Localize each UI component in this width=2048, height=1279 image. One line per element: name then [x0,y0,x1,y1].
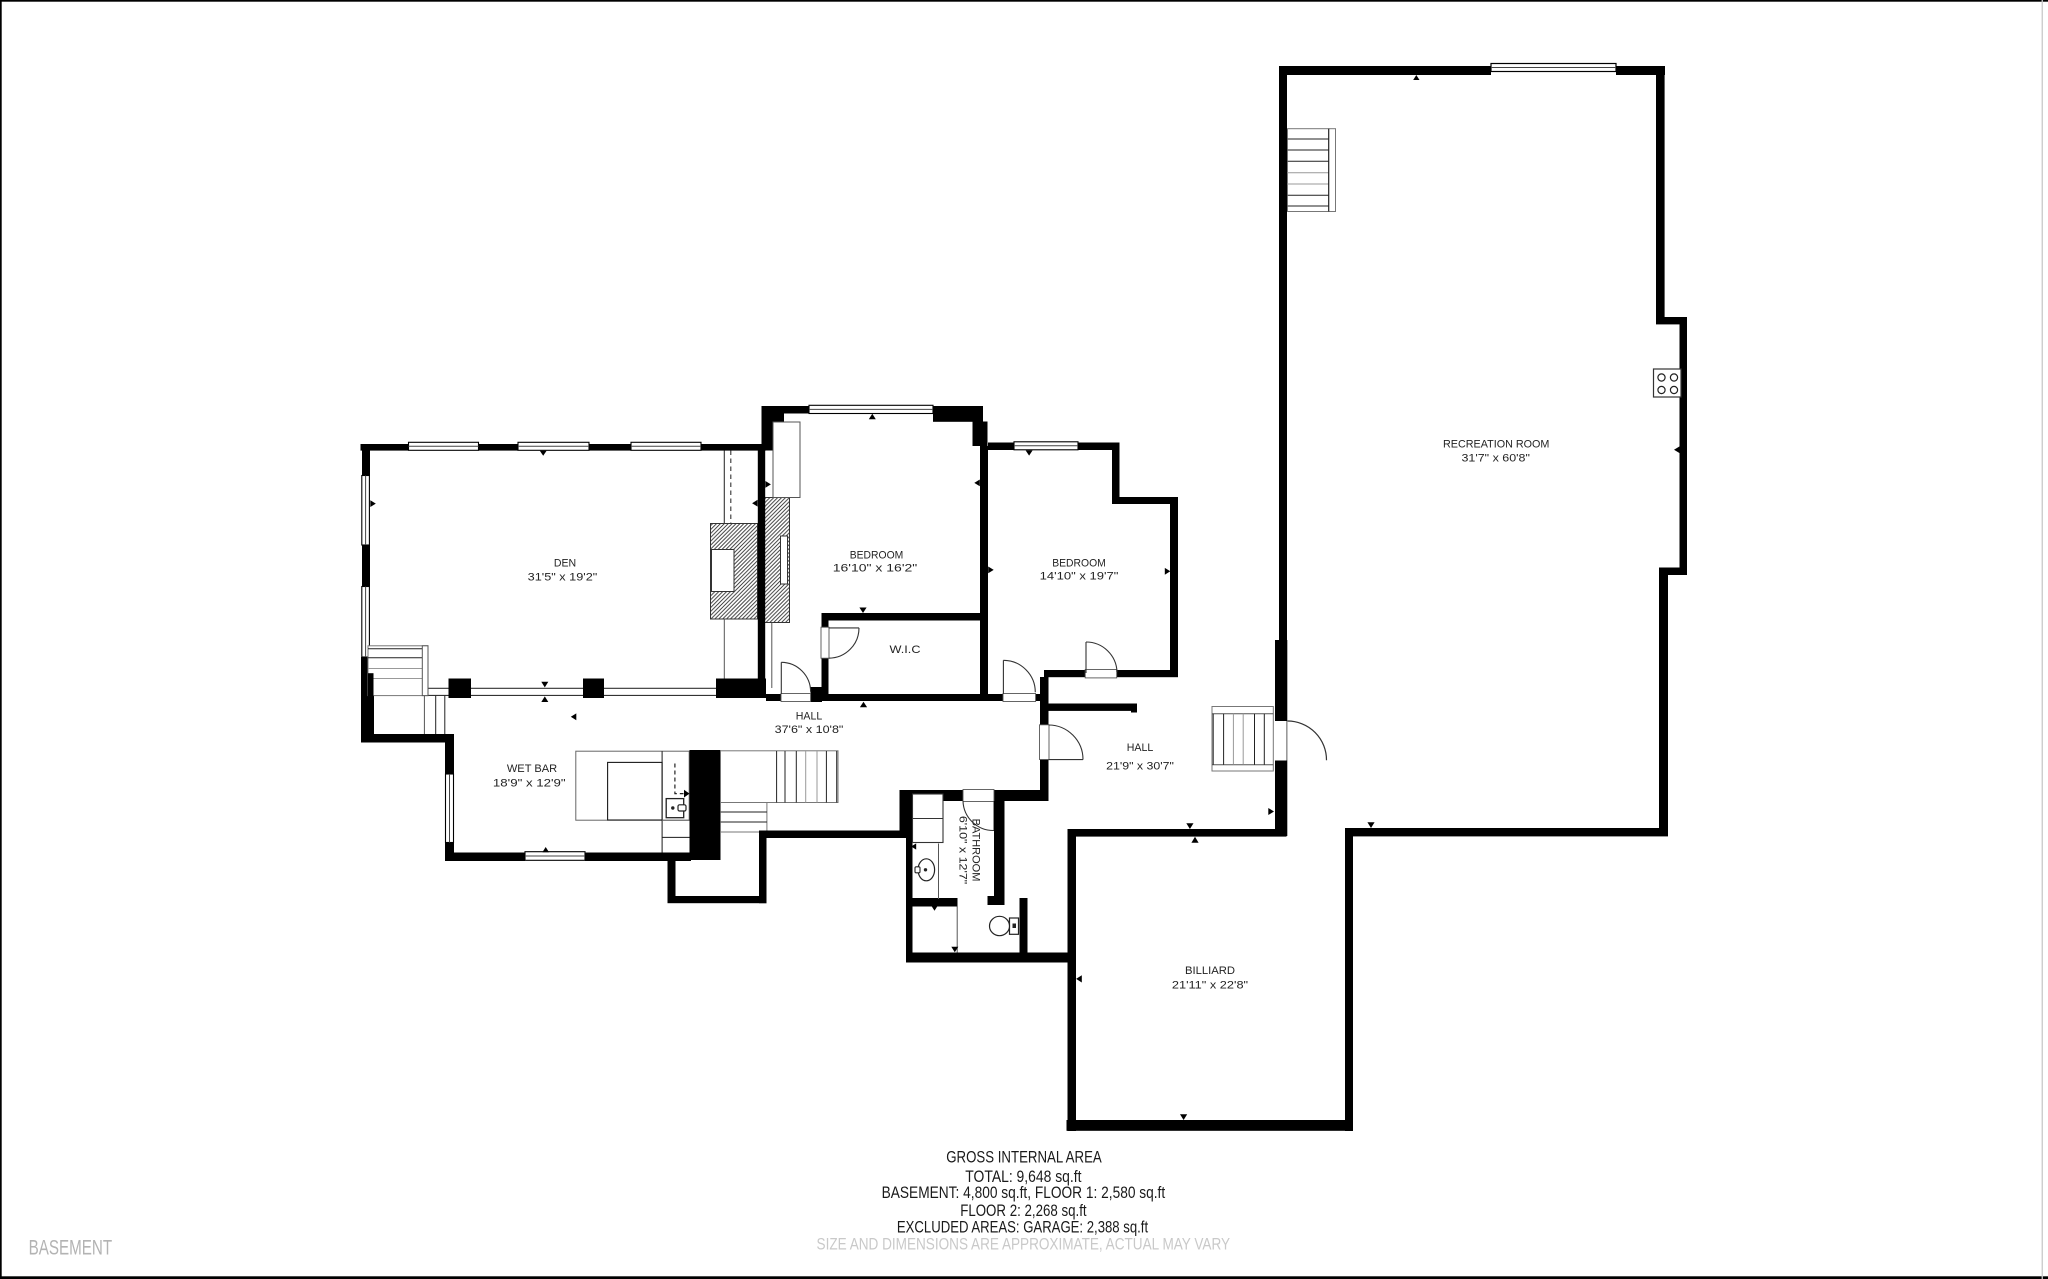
svg-text:FLOOR 2: 2,268 sq.ft: FLOOR 2: 2,268 sq.ft [960,1202,1087,1220]
svg-text:BEDROOM: BEDROOM [850,549,904,561]
svg-text:DEN: DEN [554,558,576,570]
svg-text:HALL: HALL [1127,742,1154,754]
svg-text:37'6" x 10'8": 37'6" x 10'8" [775,724,844,736]
svg-text:18'9" x 12'9": 18'9" x 12'9" [493,777,566,789]
svg-text:6'10" x 12'7": 6'10" x 12'7" [957,816,969,884]
svg-text:31'5" x 19'2": 31'5" x 19'2" [528,571,598,583]
svg-text:BASEMENT: BASEMENT [29,1236,113,1259]
svg-text:BILLIARD: BILLIARD [1185,965,1235,977]
svg-text:31'7" x 60'8": 31'7" x 60'8" [1462,453,1530,465]
svg-text:EXCLUDED AREAS: GARAGE: 2,388: EXCLUDED AREAS: GARAGE: 2,388 sq.ft [897,1219,1149,1237]
svg-text:HALL: HALL [796,710,823,722]
svg-text:BASEMENT: 4,800 sq.ft, FLOOR 1: BASEMENT: 4,800 sq.ft, FLOOR 1: 2,580 sq… [882,1184,1166,1202]
svg-text:WET BAR: WET BAR [507,763,557,775]
svg-text:SIZE AND DIMENSIONS ARE APPROX: SIZE AND DIMENSIONS ARE APPROXIMATE, ACT… [817,1235,1231,1253]
svg-text:21'11" x 22'8": 21'11" x 22'8" [1172,979,1248,991]
svg-text:W.I.C: W.I.C [890,644,921,656]
svg-text:21'9" x 30'7": 21'9" x 30'7" [1106,760,1174,772]
svg-text:GROSS INTERNAL AREA: GROSS INTERNAL AREA [946,1148,1102,1166]
svg-text:BEDROOM: BEDROOM [1052,558,1106,570]
svg-text:BATHROOM: BATHROOM [970,819,982,882]
svg-text:14'10" x 19'7": 14'10" x 19'7" [1040,571,1119,583]
svg-text:16'10" x 16'2": 16'10" x 16'2" [833,562,918,574]
svg-text:RECREATION ROOM: RECREATION ROOM [1443,439,1549,451]
